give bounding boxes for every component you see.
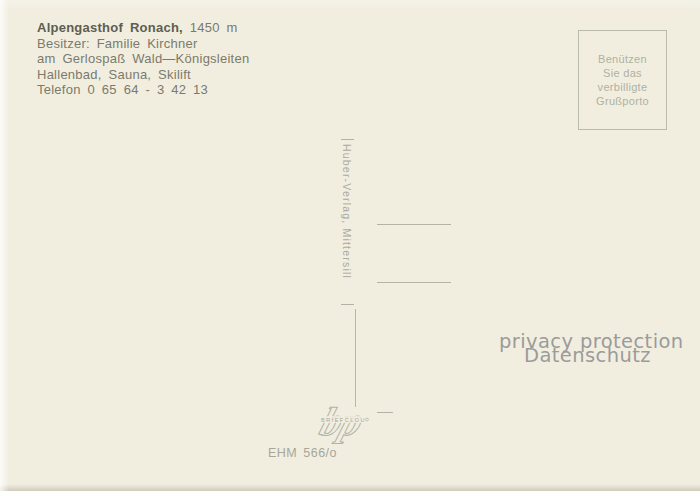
stamp-text-line: Sie das xyxy=(603,66,642,80)
hotel-info-block: Alpengasthof Ronach, 1450 m Besitzer: Fa… xyxy=(37,20,249,98)
order-number: EHM 566/o xyxy=(268,446,337,460)
address-line xyxy=(377,282,451,283)
stamp-box: Benützen Sie das verbilligte Grußporto xyxy=(578,30,667,130)
publisher-logo-icon: bp BRIEFCLOU xyxy=(314,397,376,449)
stamp-text-line: verbilligte xyxy=(598,80,648,94)
hotel-phone-line: Telefon 0 65 64 - 3 42 13 xyxy=(37,82,249,98)
logo-small-text: BRIEFCLOU xyxy=(321,417,366,423)
address-line xyxy=(377,224,451,225)
divider-line xyxy=(355,309,356,407)
hotel-location-line: am Gerlospaß Wald—Königsleiten xyxy=(37,51,249,67)
watermark-datenschutz: Datenschutz xyxy=(524,344,651,367)
hotel-title-line: Alpengasthof Ronach, 1450 m xyxy=(37,20,249,36)
divider-dash-bottom xyxy=(341,304,354,305)
logo-registered-mark xyxy=(366,418,369,421)
logo-side-dash xyxy=(377,412,393,413)
divider-dash-top xyxy=(341,139,354,140)
hotel-amenities-line: Hallenbad, Sauna, Skilift xyxy=(37,67,249,83)
stamp-text-line: Grußporto xyxy=(596,94,649,108)
publisher-imprint: Huber-Verlag, Mittersill xyxy=(341,144,353,302)
hotel-owner-line: Besitzer: Familie Kirchner xyxy=(37,36,249,52)
hotel-name: Alpengasthof Ronach, xyxy=(37,20,183,35)
hotel-altitude: 1450 m xyxy=(183,20,238,35)
stamp-text-line: Benützen xyxy=(598,52,647,66)
postcard-back: Alpengasthof Ronach, 1450 m Besitzer: Fa… xyxy=(0,0,700,491)
